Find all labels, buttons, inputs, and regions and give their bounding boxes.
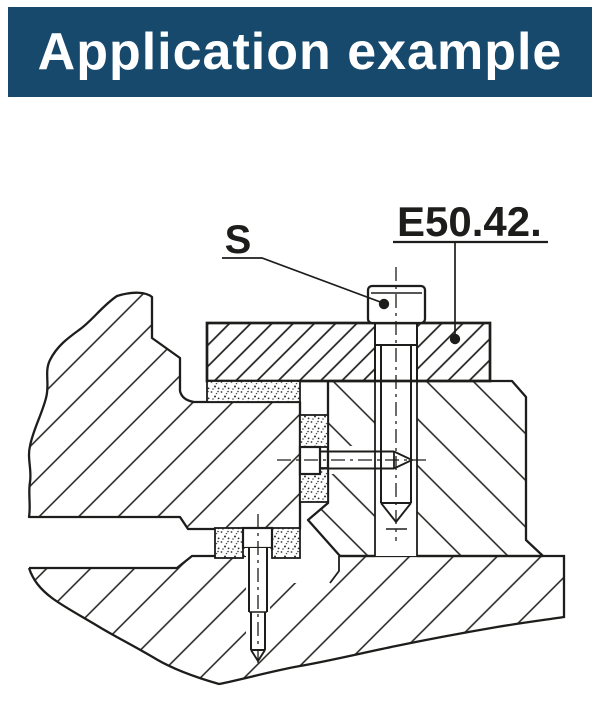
screw-leader-dot bbox=[379, 299, 389, 309]
screw-callout: S bbox=[222, 218, 389, 309]
grip-pad-bottom-left bbox=[215, 528, 243, 558]
application-example-drawing: S E50.42. bbox=[0, 0, 600, 712]
grip-pad-bottom-right bbox=[272, 528, 300, 558]
part-number-label: E50.42. bbox=[397, 198, 542, 245]
part-leader-dot bbox=[450, 334, 460, 344]
clamp-bar bbox=[207, 323, 490, 381]
grip-pad-side-upper bbox=[300, 415, 328, 447]
grip-pad-under-bar bbox=[207, 381, 300, 402]
base-block-section bbox=[29, 555, 564, 684]
catalog-page: Application example bbox=[0, 0, 600, 712]
screw-leader-line bbox=[222, 258, 383, 303]
base-notch bbox=[270, 555, 339, 583]
screw-label: S bbox=[225, 218, 252, 262]
